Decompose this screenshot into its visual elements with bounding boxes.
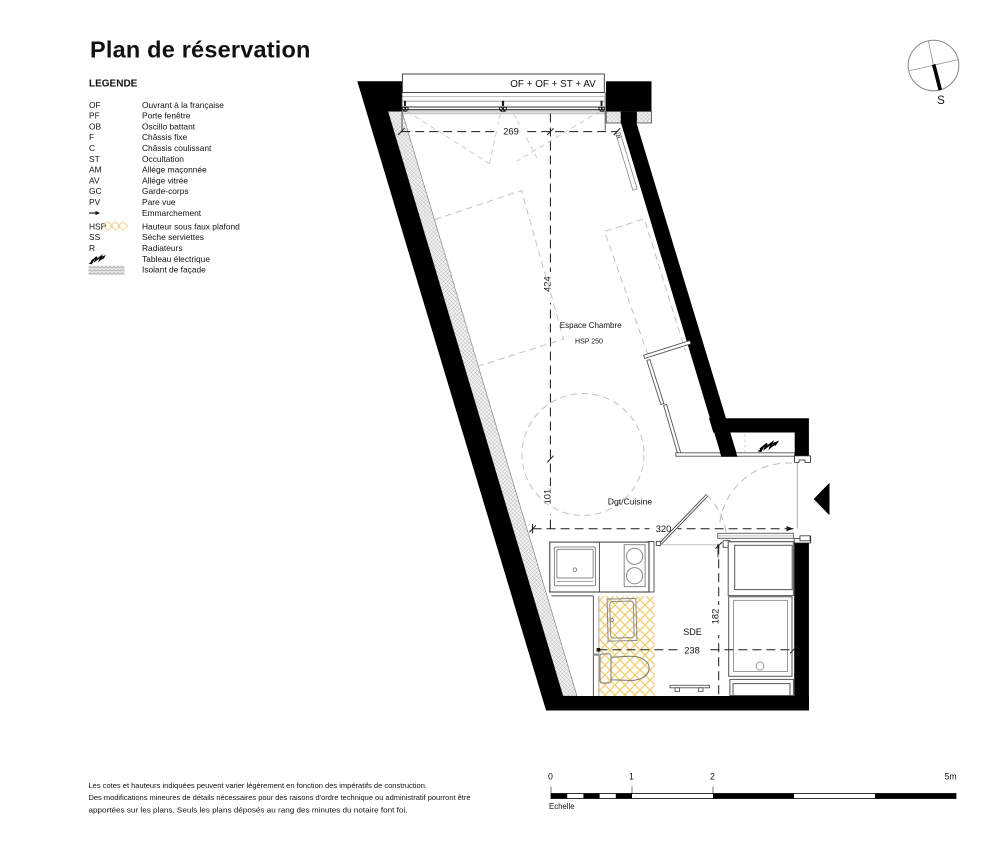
svg-text:OF: OF: [89, 100, 101, 110]
svg-text:Ouvrant à la française: Ouvrant à la française: [142, 100, 224, 110]
svg-text:Emmarchement: Emmarchement: [142, 208, 202, 218]
svg-text:269: 269: [503, 126, 519, 136]
svg-text:Des modifications mineures de: Des modifications mineures de détails né…: [89, 793, 471, 802]
svg-text:0: 0: [548, 772, 553, 782]
svg-text:320: 320: [656, 524, 672, 534]
svg-text:HSP 250: HSP 250: [575, 339, 603, 346]
svg-text:Isolant de façade: Isolant de façade: [142, 265, 206, 275]
svg-text:AV: AV: [89, 175, 100, 185]
svg-text:Pare vue: Pare vue: [142, 197, 176, 207]
svg-text:Hauteur sous faux plafond: Hauteur sous faux plafond: [142, 221, 240, 231]
svg-text:Allége maçonnée: Allége maçonnée: [142, 165, 207, 175]
svg-text:PF: PF: [89, 111, 100, 121]
svg-text:Plan de réservation: Plan de réservation: [90, 37, 311, 63]
svg-text:101: 101: [542, 489, 552, 505]
svg-text:182: 182: [711, 609, 721, 625]
svg-text:C: C: [89, 143, 95, 153]
svg-text:Oscillo battant: Oscillo battant: [142, 121, 196, 131]
svg-text:Tableau électrique: Tableau électrique: [142, 254, 210, 264]
svg-text:SDE: SDE: [683, 627, 702, 637]
svg-text:Echelle: Echelle: [549, 802, 575, 811]
svg-text:PV: PV: [89, 197, 101, 207]
svg-text:Porte fenêtre: Porte fenêtre: [142, 111, 191, 121]
svg-text:424: 424: [542, 276, 552, 292]
svg-text:apportées sur les plans. Seuls: apportées sur les plans. Seuls les plans…: [89, 805, 408, 814]
svg-text:Radiateurs: Radiateurs: [142, 243, 183, 253]
svg-text:2: 2: [710, 772, 715, 782]
svg-text:S: S: [937, 95, 945, 107]
svg-text:238: 238: [684, 646, 700, 656]
svg-text:OB: OB: [89, 121, 102, 131]
svg-text:Les cotes et hauteurs indiquée: Les cotes et hauteurs indiquées peuvent …: [89, 781, 428, 790]
svg-text:OF + OF + ST + AV: OF + OF + ST + AV: [510, 79, 596, 90]
svg-text:5m: 5m: [945, 772, 957, 782]
svg-text:Châssis fixe: Châssis fixe: [142, 132, 187, 142]
svg-text:Espace Chambre: Espace Chambre: [560, 320, 622, 330]
svg-text:Allége vitrée: Allége vitrée: [142, 175, 188, 185]
svg-text:R: R: [89, 243, 95, 253]
svg-text:F: F: [89, 132, 94, 142]
svg-text:Châssis coulissant: Châssis coulissant: [142, 143, 212, 153]
svg-text:ST: ST: [89, 154, 100, 164]
svg-text:GC: GC: [89, 186, 102, 196]
svg-text:SS: SS: [89, 232, 101, 242]
svg-text:1: 1: [629, 772, 634, 782]
svg-text:Occultation: Occultation: [142, 154, 184, 164]
svg-text:Séche serviettes: Séche serviettes: [142, 232, 204, 242]
svg-text:Garde-corps: Garde-corps: [142, 186, 189, 196]
svg-text:LEGENDE: LEGENDE: [89, 79, 138, 90]
svg-text:AM: AM: [89, 165, 102, 175]
svg-text:Dgt/Cuisine: Dgt/Cuisine: [608, 497, 653, 507]
